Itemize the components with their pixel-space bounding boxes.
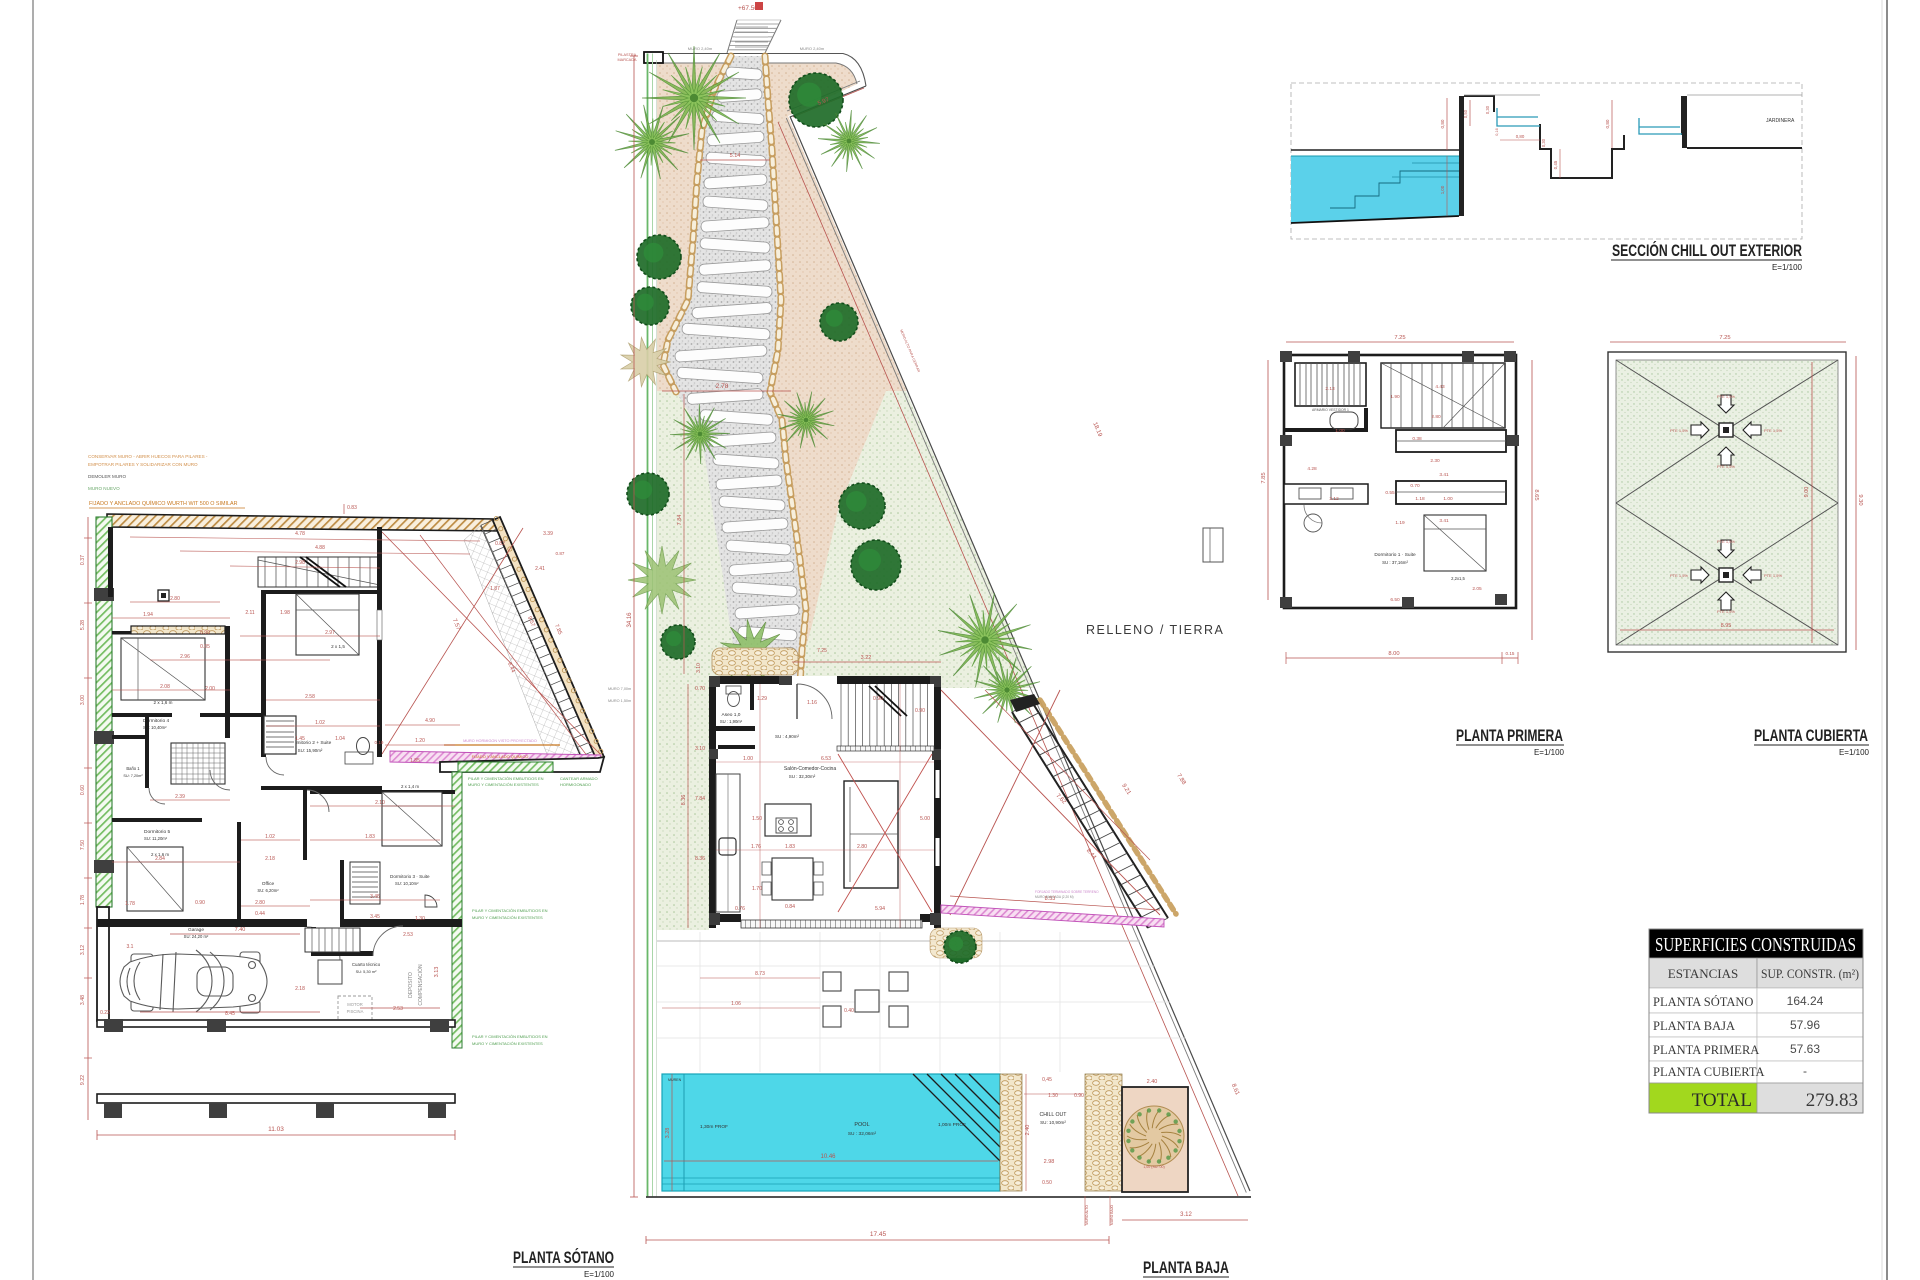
svg-text:2.11: 2.11 xyxy=(245,610,255,616)
svg-text:Dormitorio 5: Dormitorio 5 xyxy=(144,829,170,835)
svg-text:1,30m PROF: 1,30m PROF xyxy=(700,1124,728,1130)
svg-text:1.85: 1.85 xyxy=(410,758,420,764)
svg-text:1.00: 1.00 xyxy=(743,756,753,762)
svg-text:3.48: 3.48 xyxy=(80,995,86,1005)
svg-text:0.90: 0.90 xyxy=(873,696,883,702)
svg-text:0.50: 0.50 xyxy=(1042,1180,1052,1186)
svg-text:MURO 1,50m: MURO 1,50m xyxy=(608,699,631,703)
svg-text:CHILL OUT: CHILL OUT xyxy=(1040,1112,1068,1118)
svg-text:279.83: 279.83 xyxy=(1806,1090,1858,1111)
svg-text:0.44: 0.44 xyxy=(255,911,265,917)
svg-text:MUREN: MUREN xyxy=(668,1078,682,1082)
svg-text:1.16: 1.16 xyxy=(807,700,817,706)
svg-text:0.90: 0.90 xyxy=(200,630,210,636)
svg-text:0.90: 0.90 xyxy=(915,708,925,714)
svg-text:2.05: 2.05 xyxy=(1472,586,1482,592)
svg-text:PTE 1,5%: PTE 1,5% xyxy=(1764,573,1782,578)
svg-text:3.13: 3.13 xyxy=(434,967,440,978)
svg-text:PILAR Y CIMENTACIÓN EMBUTIDOS: PILAR Y CIMENTACIÓN EMBUTIDOS EN xyxy=(472,908,548,913)
svg-text:1.98: 1.98 xyxy=(280,610,290,616)
svg-text:PILAR Y CIMENTACIÓN EMBUTIDOS: PILAR Y CIMENTACIÓN EMBUTIDOS EN xyxy=(468,776,544,781)
svg-text:JARDINERA: JARDINERA xyxy=(1766,118,1795,124)
svg-text:E=1/100: E=1/100 xyxy=(1772,263,1803,272)
svg-text:PTE 1,5%: PTE 1,5% xyxy=(1717,539,1735,544)
svg-text:2.80: 2.80 xyxy=(857,844,867,850)
svg-text:57.63: 57.63 xyxy=(1790,1042,1820,1056)
svg-text:PTE 1,5%: PTE 1,5% xyxy=(1670,428,1688,433)
svg-text:3.39: 3.39 xyxy=(543,531,553,537)
svg-text:SUP. CONSTR. (m²): SUP. CONSTR. (m²) xyxy=(1761,967,1859,981)
svg-text:PILAR Y CIMENTACIÓN EMBUTIDOS: PILAR Y CIMENTACIÓN EMBUTIDOS EN xyxy=(472,1034,548,1039)
svg-text:SU : 32,06m²: SU : 32,06m² xyxy=(848,1131,877,1137)
svg-text:1.00: 1.00 xyxy=(1443,496,1453,502)
svg-text:MURO 2,40m: MURO 2,40m xyxy=(688,46,713,51)
svg-text:4.28: 4.28 xyxy=(1307,466,1317,472)
svg-text:8.36: 8.36 xyxy=(695,856,705,862)
svg-text:2.78: 2.78 xyxy=(716,383,729,390)
svg-text:4.88: 4.88 xyxy=(315,545,325,551)
svg-text:1.70: 1.70 xyxy=(752,886,762,892)
svg-text:7.25: 7.25 xyxy=(1394,335,1405,341)
svg-text:0.84: 0.84 xyxy=(785,904,795,910)
svg-text:PTE 1,5%: PTE 1,5% xyxy=(1717,609,1735,614)
svg-text:3.12: 3.12 xyxy=(1180,1212,1192,1218)
svg-text:FORJADO TERMINADO SOBRE TERREN: FORJADO TERMINADO SOBRE TERRENO xyxy=(1035,890,1099,894)
svg-text:0.83: 0.83 xyxy=(347,505,357,511)
svg-text:0,30: 0,30 xyxy=(1485,105,1490,114)
svg-text:0.90: 0.90 xyxy=(195,900,205,906)
svg-text:0,50: 0,50 xyxy=(1463,109,1468,118)
svg-text:7.25: 7.25 xyxy=(817,648,827,654)
svg-text:HORMIGONADO: HORMIGONADO xyxy=(560,782,591,787)
svg-text:3.1: 3.1 xyxy=(127,944,134,950)
svg-text:2 x 1,6 m: 2 x 1,6 m xyxy=(154,700,173,705)
svg-text:FIJADO Y ANCLADO QUÍMICO: FIJADO Y ANCLADO QUÍMICO xyxy=(472,754,529,759)
svg-text:4.90: 4.90 xyxy=(425,718,435,724)
svg-text:FIJADO Y ANCLADO QUÍMICO WURTH: FIJADO Y ANCLADO QUÍMICO WURTH WIT 500 O… xyxy=(89,500,238,507)
svg-text:2.41: 2.41 xyxy=(535,566,545,572)
svg-text:Salón-Comedor-Cocina: Salón-Comedor-Cocina xyxy=(784,766,836,772)
svg-text:1,00 (SU: 00): 1,00 (SU: 00) xyxy=(1143,1165,1164,1169)
svg-text:2.08: 2.08 xyxy=(160,684,170,690)
svg-text:8.00: 8.00 xyxy=(1388,651,1399,657)
svg-text:0.38: 0.38 xyxy=(1412,436,1422,442)
svg-text:SU : 37,16m²: SU : 37,16m² xyxy=(1382,560,1408,565)
svg-text:2.80: 2.80 xyxy=(1431,414,1441,420)
svg-text:0.60: 0.60 xyxy=(80,785,86,795)
svg-text:3.12: 3.12 xyxy=(1329,496,1339,502)
svg-text:MURO 7,00m: MURO 7,00m xyxy=(608,687,631,691)
svg-text:SU: 5,30 m²: SU: 5,30 m² xyxy=(356,969,377,974)
svg-text:8.73: 8.73 xyxy=(755,971,765,977)
svg-text:2.53: 2.53 xyxy=(403,932,413,938)
svg-text:0.87: 0.87 xyxy=(556,551,565,556)
svg-text:MURO BANCADA (2,20 M): MURO BANCADA (2,20 M) xyxy=(1035,895,1074,899)
svg-text:MURO Y CIMENTACIÓN EXISTENTES: MURO Y CIMENTACIÓN EXISTENTES xyxy=(472,1041,543,1046)
svg-text:3.12: 3.12 xyxy=(80,945,86,955)
svg-text:2 x 1,5: 2 x 1,5 xyxy=(331,644,345,649)
svg-text:9.30: 9.30 xyxy=(1857,494,1863,505)
svg-text:1.18: 1.18 xyxy=(1415,496,1425,502)
svg-text:0,45: 0,45 xyxy=(1553,160,1558,169)
svg-text:PISCINA: PISCINA xyxy=(347,1009,364,1014)
svg-text:2.80: 2.80 xyxy=(170,596,180,602)
svg-text:PLANTA BAJA: PLANTA BAJA xyxy=(1143,1258,1229,1277)
svg-text:ARMARIO VESTIDOR 1: ARMARIO VESTIDOR 1 xyxy=(1312,408,1349,412)
svg-text:SECCIÓN CHILL OUT EXTERIOR: SECCIÓN CHILL OUT EXTERIOR xyxy=(1612,241,1802,260)
svg-text:2.96: 2.96 xyxy=(180,654,190,660)
svg-text:Baño 1: Baño 1 xyxy=(126,766,140,771)
svg-text:1.19: 1.19 xyxy=(1395,520,1405,526)
svg-text:PLANTA SÓTANO: PLANTA SÓTANO xyxy=(1653,995,1753,1009)
svg-text:2.98: 2.98 xyxy=(1044,1159,1055,1165)
svg-text:1.94: 1.94 xyxy=(143,612,153,618)
svg-text:PTE 1,5%: PTE 1,5% xyxy=(1764,428,1782,433)
svg-text:0.55: 0.55 xyxy=(1385,490,1395,496)
svg-text:2 x 1,4 m: 2 x 1,4 m xyxy=(401,784,419,789)
svg-text:5.94: 5.94 xyxy=(875,906,885,912)
svg-text:PLANTA CUBIERTA: PLANTA CUBIERTA xyxy=(1754,726,1868,745)
svg-text:0.37: 0.37 xyxy=(80,555,86,565)
svg-text:-: - xyxy=(1803,1064,1807,1078)
svg-text:2.30: 2.30 xyxy=(1430,458,1440,464)
svg-text:PLANTA CUBIERTA: PLANTA CUBIERTA xyxy=(1653,1065,1765,1079)
svg-text:PLANTA PRIMERA: PLANTA PRIMERA xyxy=(1456,726,1563,745)
svg-text:9.22: 9.22 xyxy=(80,1075,86,1085)
svg-text:EMPOTRAR PILARES Y SOLIDARIZAR: EMPOTRAR PILARES Y SOLIDARIZAR CON MURO xyxy=(88,462,198,467)
svg-text:9.00: 9.00 xyxy=(1804,487,1810,498)
svg-text:2.53: 2.53 xyxy=(393,1006,403,1012)
svg-text:Garage: Garage xyxy=(188,927,204,933)
svg-text:2.84: 2.84 xyxy=(155,856,165,862)
svg-text:SU : 32,30m²: SU : 32,30m² xyxy=(789,774,816,779)
svg-text:11.03: 11.03 xyxy=(268,1126,284,1133)
svg-text:0.70: 0.70 xyxy=(695,686,705,692)
svg-text:3.28: 3.28 xyxy=(665,1128,671,1139)
svg-text:0,30: 0,30 xyxy=(1541,138,1546,147)
svg-text:MURO Y CIMENTACIÓN EXISTENTES: MURO Y CIMENTACIÓN EXISTENTES xyxy=(468,782,539,787)
svg-text:2.40: 2.40 xyxy=(1147,1079,1158,1085)
svg-text:SUPERFICIES CONSTRUIDAS: SUPERFICIES CONSTRUIDAS xyxy=(1655,934,1856,956)
svg-text:1.50: 1.50 xyxy=(752,816,762,822)
svg-text:MURO NUEVO: MURO NUEVO xyxy=(88,486,120,491)
svg-text:8.65: 8.65 xyxy=(1533,489,1539,500)
svg-text:1.83: 1.83 xyxy=(785,844,795,850)
svg-text:PTE 1,5%: PTE 1,5% xyxy=(1670,573,1688,578)
svg-text:CONSERVAR MURO - ABRIR HUECOS: CONSERVAR MURO - ABRIR HUECOS PARA PILAR… xyxy=(88,454,208,459)
svg-text:1.02: 1.02 xyxy=(265,834,275,840)
svg-text:1.20: 1.20 xyxy=(415,738,425,744)
svg-text:1.06: 1.06 xyxy=(731,1001,741,1007)
svg-text:0,45: 0,45 xyxy=(1042,1077,1052,1083)
svg-text:6.50: 6.50 xyxy=(1390,597,1400,603)
svg-text:2.18: 2.18 xyxy=(295,986,305,992)
svg-text:CANTEAR ARMADO: CANTEAR ARMADO xyxy=(560,776,598,781)
svg-text:57.96: 57.96 xyxy=(1790,1018,1820,1032)
svg-text:1,00m PROF: 1,00m PROF xyxy=(938,1122,966,1128)
svg-text:PLANTA SÓTANO: PLANTA SÓTANO xyxy=(513,1248,614,1267)
svg-text:7.25: 7.25 xyxy=(1719,335,1730,341)
svg-text:SU: 6,20m²: SU: 6,20m² xyxy=(257,888,279,893)
svg-text:SU: 10,90m²: SU: 10,90m² xyxy=(1040,1120,1066,1125)
svg-text:TOTAL: TOTAL xyxy=(1692,1090,1752,1111)
svg-text:Cuarto técnico: Cuarto técnico xyxy=(352,962,381,967)
svg-text:1.29: 1.29 xyxy=(757,696,767,702)
svg-text:2.39: 2.39 xyxy=(175,794,185,800)
svg-text:17.45: 17.45 xyxy=(870,1231,887,1238)
svg-text:PTE 1,5%: PTE 1,5% xyxy=(1717,394,1735,399)
svg-text:MURO 2,40m: MURO 2,40m xyxy=(800,46,825,51)
svg-text:1.30: 1.30 xyxy=(415,916,425,922)
svg-text:SU: 24,20 m²: SU: 24,20 m² xyxy=(184,934,209,939)
svg-text:34.16: 34.16 xyxy=(627,612,633,628)
svg-text:1.04: 1.04 xyxy=(335,736,345,742)
svg-text:SU: 11,20m²: SU: 11,20m² xyxy=(144,836,168,841)
svg-text:7.84: 7.84 xyxy=(677,515,683,526)
svg-text:E=1/100: E=1/100 xyxy=(1534,748,1565,757)
svg-text:0.70: 0.70 xyxy=(1410,483,1420,489)
svg-text:7.84: 7.84 xyxy=(695,796,705,802)
svg-text:3.10: 3.10 xyxy=(695,746,705,752)
svg-text:SU : 4,90m²: SU : 4,90m² xyxy=(775,734,800,739)
svg-text:2.10: 2.10 xyxy=(375,800,385,806)
svg-text:2,2x1,5: 2,2x1,5 xyxy=(1451,576,1465,581)
svg-text:PTE 1,5%: PTE 1,5% xyxy=(1717,464,1735,469)
svg-text:DEMOLER MURO: DEMOLER MURO xyxy=(88,474,126,479)
svg-text:1.83: 1.83 xyxy=(365,834,375,840)
svg-text:1.87: 1.87 xyxy=(490,586,500,592)
svg-text:3.45: 3.45 xyxy=(370,894,380,900)
svg-text:0.76: 0.76 xyxy=(735,906,745,912)
svg-text:0.05: 0.05 xyxy=(200,644,210,650)
svg-text:COMPENSACIÓN: COMPENSACIÓN xyxy=(417,964,424,1006)
svg-text:2.18: 2.18 xyxy=(265,856,275,862)
svg-text:7.40: 7.40 xyxy=(235,927,246,933)
svg-text:1.90: 1.90 xyxy=(1390,394,1400,400)
svg-text:3.00: 3.00 xyxy=(80,695,86,705)
svg-text:Office: Office xyxy=(262,881,275,887)
svg-text:7.85: 7.85 xyxy=(1261,472,1267,483)
svg-text:MURO ALTO: MURO ALTO xyxy=(1085,1205,1089,1225)
svg-text:3.10: 3.10 xyxy=(696,663,702,673)
svg-text:2.97: 2.97 xyxy=(325,630,335,636)
svg-text:SU: 15,90m²: SU: 15,90m² xyxy=(298,748,323,753)
svg-text:MURO HORMIGON VISTO PROYECTADO: MURO HORMIGON VISTO PROYECTADO xyxy=(463,739,537,743)
svg-text:0,80: 0,80 xyxy=(1440,119,1445,128)
svg-text:E=1/100: E=1/100 xyxy=(584,1270,615,1279)
svg-text:3.41: 3.41 xyxy=(1439,472,1449,478)
svg-text:2.98: 2.98 xyxy=(295,560,305,566)
svg-text:5.14: 5.14 xyxy=(730,153,741,159)
svg-text:0,80: 0,80 xyxy=(1605,119,1610,128)
svg-text:0.22: 0.22 xyxy=(100,1010,110,1016)
svg-text:ESTANCIAS: ESTANCIAS xyxy=(1668,966,1738,981)
svg-text:3.22: 3.22 xyxy=(861,655,872,661)
svg-text:8.36: 8.36 xyxy=(681,795,687,806)
svg-text:1.78: 1.78 xyxy=(80,895,86,905)
svg-text:5.28: 5.28 xyxy=(80,620,86,630)
svg-text:1.45: 1.45 xyxy=(295,736,305,742)
svg-text:164.24: 164.24 xyxy=(1787,994,1824,1008)
svg-text:POOL: POOL xyxy=(854,1122,869,1128)
svg-text:6.53: 6.53 xyxy=(821,756,831,762)
svg-text:MOTOR: MOTOR xyxy=(347,1002,363,1007)
svg-text:2.58: 2.58 xyxy=(305,694,315,700)
svg-text:3.41: 3.41 xyxy=(1439,518,1449,524)
svg-text:Dormitorio 1 · Suite: Dormitorio 1 · Suite xyxy=(1374,552,1416,558)
svg-text:Aseo 1,0: Aseo 1,0 xyxy=(722,712,741,718)
svg-text:MURO BAJO: MURO BAJO xyxy=(1110,1205,1114,1226)
svg-text:PLANTA BAJA: PLANTA BAJA xyxy=(1653,1019,1735,1033)
svg-text:1.76: 1.76 xyxy=(751,844,761,850)
svg-text:0.19: 0.19 xyxy=(375,740,384,745)
svg-text:0.15: 0.15 xyxy=(1506,651,1515,656)
svg-text:2.80: 2.80 xyxy=(255,900,265,906)
svg-text:0.40: 0.40 xyxy=(844,1008,854,1014)
svg-text:PLANTA PRIMERA: PLANTA PRIMERA xyxy=(1653,1043,1759,1057)
svg-text:SU : 1,90m²: SU : 1,90m² xyxy=(720,719,743,724)
svg-text:8.95: 8.95 xyxy=(1721,623,1732,629)
svg-text:4.78: 4.78 xyxy=(295,531,305,537)
svg-text:DEPOSITO: DEPOSITO xyxy=(408,972,414,998)
svg-text:10.46: 10.46 xyxy=(820,1154,836,1160)
svg-text:2.00: 2.00 xyxy=(205,686,215,692)
svg-text:1.02: 1.02 xyxy=(315,720,325,726)
svg-text:0,16: 0,16 xyxy=(1495,128,1499,135)
svg-text:E=1/100: E=1/100 xyxy=(1839,748,1870,757)
svg-text:Dormitorio 3 · Suite: Dormitorio 3 · Suite xyxy=(390,874,430,879)
svg-text:1,00: 1,00 xyxy=(1440,185,1445,194)
svg-text:2.13: 2.13 xyxy=(1325,386,1335,392)
svg-text:1.00: 1.00 xyxy=(1335,428,1345,434)
svg-text:MURO Y CIMENTACIÓN EXISTENTES: MURO Y CIMENTACIÓN EXISTENTES xyxy=(472,915,543,920)
svg-text:7.50: 7.50 xyxy=(80,840,86,850)
svg-text:SU: 7,20m²: SU: 7,20m² xyxy=(123,774,143,778)
svg-text:5.00: 5.00 xyxy=(920,816,930,822)
svg-text:1.78: 1.78 xyxy=(125,901,135,907)
svg-text:RELLENO / TIERRA: RELLENO / TIERRA xyxy=(1086,623,1224,637)
svg-text:SU: 10,10m²: SU: 10,10m² xyxy=(395,881,419,886)
svg-text:0,80: 0,80 xyxy=(1516,134,1525,139)
svg-text:3.45: 3.45 xyxy=(370,914,380,920)
svg-text:4.43: 4.43 xyxy=(1435,384,1445,390)
svg-text:0.82: 0.82 xyxy=(495,541,505,547)
